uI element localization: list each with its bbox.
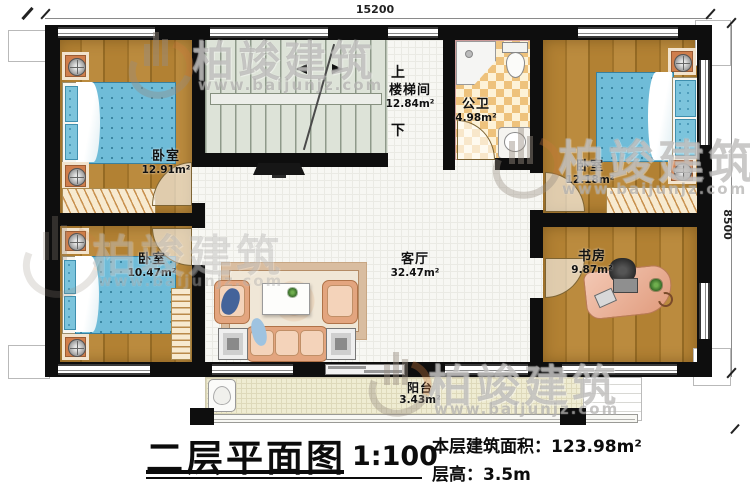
- wall-left: [45, 25, 60, 377]
- wall-interior: [530, 213, 712, 227]
- lamp-icon: [68, 58, 86, 76]
- balcony-post: [560, 408, 586, 425]
- sofa-cushion: [275, 330, 299, 356]
- window: [210, 27, 328, 38]
- sliding-door-panel: [364, 370, 402, 373]
- window: [699, 60, 710, 145]
- room-area: 10.47m²: [102, 268, 202, 280]
- nightstand: [668, 157, 696, 184]
- bed-sheet: [648, 72, 672, 160]
- sofa-cushion: [300, 330, 324, 356]
- window: [578, 27, 678, 38]
- floor-plan-canvas: 卧室 12.91m² 卧室 10.47m² 上 楼梯间 12.84m² 下 公卫…: [0, 0, 750, 487]
- wall-interior: [58, 213, 192, 226]
- room-area: 3.43m²: [385, 395, 455, 407]
- nightstand: [668, 48, 696, 75]
- floor-height-info: 层高：3.5m: [432, 460, 531, 485]
- floor-area-label: 本层建筑面积：: [432, 437, 551, 457]
- room-label-study: 书房 9.87m²: [542, 250, 642, 276]
- room-area: 12.91m²: [116, 165, 216, 177]
- lamp-icon: [68, 233, 86, 251]
- tv-stand: [272, 175, 286, 178]
- room-area: 9.87m²: [542, 265, 642, 277]
- coffee-table: [262, 283, 310, 315]
- dimension-width: 15200: [345, 3, 405, 16]
- pillow: [64, 296, 76, 330]
- floor-height-value: 3.5m: [483, 465, 531, 485]
- pillow: [675, 80, 696, 117]
- room-area: 4.98m²: [432, 113, 520, 125]
- stairs-down-label: 下: [391, 120, 405, 140]
- plant: [288, 288, 297, 297]
- nightstand: [62, 52, 89, 80]
- lamp-icon: [68, 168, 86, 186]
- tv: [253, 163, 305, 175]
- sink: [498, 127, 532, 159]
- pillow: [65, 86, 78, 122]
- monitor: [613, 278, 638, 293]
- room-label-bedroom-bottom-left: 卧室 10.47m²: [102, 253, 202, 279]
- bed-sheet: [76, 82, 100, 162]
- window: [58, 364, 150, 375]
- dimension-line-top: [45, 18, 712, 19]
- stairs-up-label: 上: [391, 62, 405, 82]
- dimension-height: 8500: [721, 209, 734, 240]
- sliding-door-panel: [328, 366, 366, 369]
- room-label-bathroom: 公卫 4.98m²: [432, 98, 520, 124]
- room-name: 楼梯间: [370, 84, 450, 99]
- wardrobe: [606, 187, 699, 214]
- wall-interior: [192, 25, 205, 163]
- room-name: 卧室: [540, 160, 640, 175]
- window: [58, 27, 155, 38]
- wall-interior: [530, 25, 543, 173]
- room-label-bedroom-top-left: 卧室 12.91m²: [116, 150, 216, 176]
- pillow: [65, 124, 78, 160]
- nightstand: [62, 334, 89, 360]
- pillow: [675, 119, 696, 156]
- pillow: [64, 260, 76, 294]
- plan-scale: 1:100: [352, 441, 438, 472]
- window: [212, 364, 293, 375]
- pilaster-bottom-left: [8, 345, 50, 379]
- wall-interior: [192, 265, 205, 362]
- lamp-icon: [674, 54, 692, 72]
- side-table: [218, 328, 248, 360]
- room-name: 卧室: [116, 150, 216, 165]
- room-label-bedroom-right: 卧室 12.18m²: [540, 160, 640, 186]
- title-underline-thick: [146, 470, 344, 474]
- room-area: 32.47m²: [365, 268, 465, 280]
- stair-handrail: [210, 93, 382, 105]
- room-name: 公卫: [432, 98, 520, 113]
- plant: [650, 279, 662, 291]
- wardrobe: [62, 188, 156, 214]
- stair-direction-arrow-left: [296, 64, 307, 74]
- floor-height-label: 层高：: [432, 465, 483, 485]
- room-label-living-room: 客厅 32.47m²: [365, 253, 465, 279]
- floor-area-value: 123.98m²: [551, 437, 642, 457]
- nightstand: [62, 162, 89, 190]
- balcony-post: [190, 408, 214, 425]
- pilaster-top-left: [8, 30, 50, 62]
- floor-area-info: 本层建筑面积：123.98m²: [432, 432, 642, 457]
- window: [699, 283, 710, 339]
- stair-direction-arrow-right: [332, 64, 343, 74]
- window: [445, 364, 528, 375]
- dimension-line-right: [731, 25, 732, 377]
- shelf-ladder: [171, 288, 191, 360]
- leader-mark: [21, 7, 33, 20]
- bed-sheet: [75, 256, 99, 332]
- room-name: 卧室: [102, 253, 202, 268]
- sliding-door: [325, 364, 405, 375]
- title-underline-thin: [146, 477, 422, 479]
- room-area: 12.18m²: [540, 175, 640, 187]
- armchair-cushion: [327, 285, 353, 317]
- lamp-icon: [674, 163, 692, 181]
- wall-interior: [192, 203, 205, 228]
- side-table: [326, 328, 356, 360]
- leader-mark: [730, 424, 740, 434]
- room-label-balcony: 阳台 3.43m²: [385, 382, 455, 407]
- wall-interior: [530, 298, 543, 362]
- room-name: 客厅: [365, 253, 465, 268]
- window: [562, 364, 677, 375]
- window: [388, 27, 438, 38]
- room-name: 书房: [542, 250, 642, 265]
- lamp-icon: [68, 339, 86, 357]
- nightstand: [62, 228, 89, 254]
